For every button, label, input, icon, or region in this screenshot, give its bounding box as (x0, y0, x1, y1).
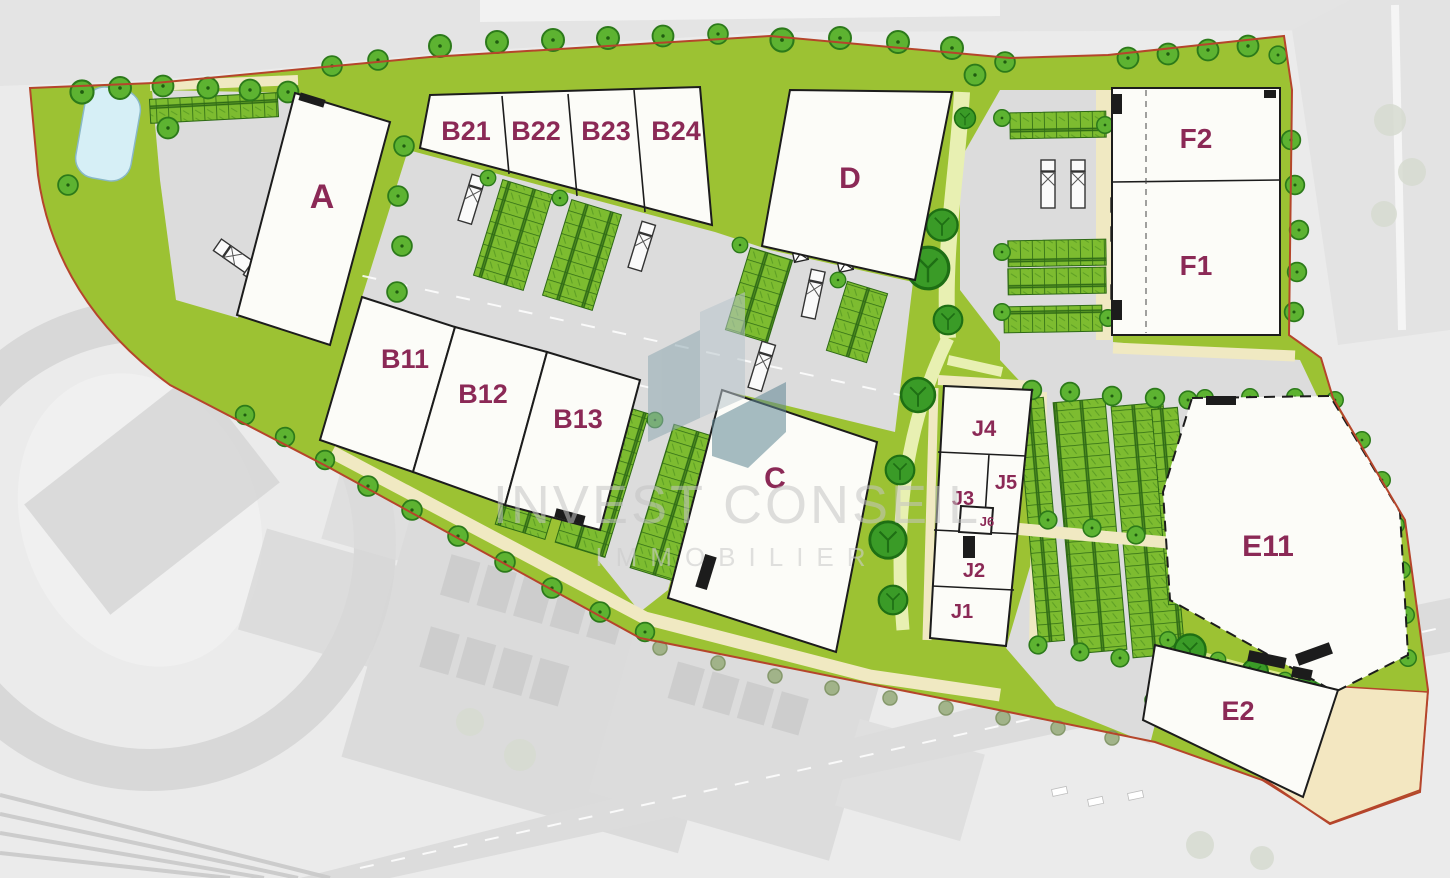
building-label-b22: B22 (511, 116, 561, 146)
building-label-j6: J6 (980, 514, 994, 529)
site-plan-page: A B21 B22 B23 B24 D F2 F1 B11 B12 B13 C … (0, 0, 1450, 878)
building-j-door (963, 536, 975, 558)
building-label-d: D (839, 162, 861, 195)
building-label-b23: B23 (581, 116, 631, 146)
site-plan-svg: A B21 B22 B23 B24 D F2 F1 B11 B12 B13 C … (0, 0, 1450, 878)
building-label-a: A (310, 178, 335, 216)
building-label-j2: J2 (963, 560, 985, 582)
building-label-e11: E11 (1242, 530, 1294, 563)
building-label-e2: E2 (1221, 696, 1254, 726)
building-label-b21: B21 (441, 116, 491, 146)
building-label-j4: J4 (972, 416, 997, 441)
watermark-line2: IMMOBILIER (595, 542, 878, 572)
building-label-f1: F1 (1180, 250, 1213, 281)
building-label-j5: J5 (995, 472, 1017, 494)
building-label-j1: J1 (951, 601, 973, 623)
building-label-f2: F2 (1180, 123, 1213, 154)
building-e11-detail-1 (1206, 396, 1236, 405)
building-label-b11: B11 (381, 344, 429, 374)
building-label-b24: B24 (651, 116, 701, 146)
building-label-b12: B12 (458, 379, 508, 409)
building-label-b13: B13 (553, 404, 603, 434)
watermark-line1: INVEST CONSEIL (493, 475, 981, 535)
